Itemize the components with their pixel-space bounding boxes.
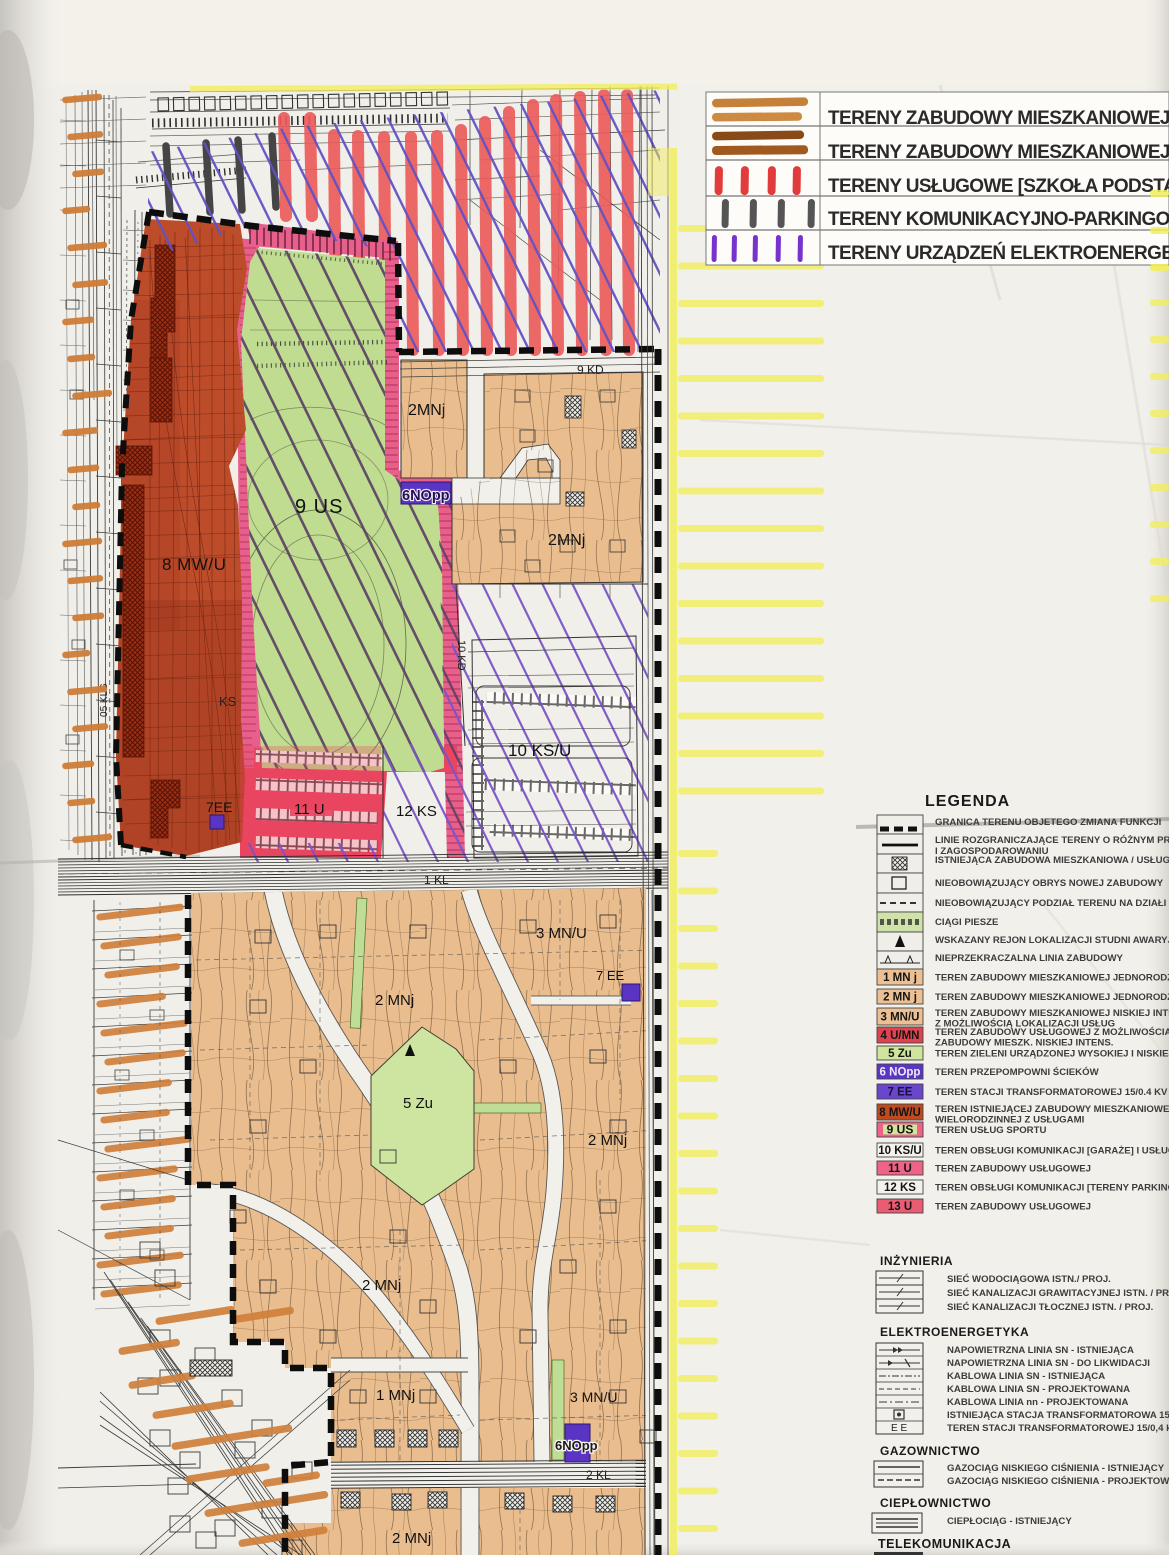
svg-text:KABLOWA LINIA nn - PROJEKTOWAN: KABLOWA LINIA nn - PROJEKTOWANA [947,1397,1128,1408]
svg-text:6NOpp: 6NOpp [555,1438,598,1453]
svg-text:NAPOWIETRZNA LINIA SN - DO LIK: NAPOWIETRZNA LINIA SN - DO LIKWIDACJI [947,1358,1150,1369]
svg-text:KABLOWA LINIA SN - ISTNIEJĄCA: KABLOWA LINIA SN - ISTNIEJĄCA [947,1371,1105,1382]
svg-text:ISTNIEJĄCA STACJA TRANSFORMATO: ISTNIEJĄCA STACJA TRANSFORMATOROWA 15/0,… [947,1410,1169,1421]
svg-text:CIĄGI PIESZE: CIĄGI PIESZE [935,917,999,928]
svg-text:10 KS/U: 10 KS/U [508,741,571,760]
svg-text:TEREN OBSŁUGI KOMUNIKACJI [GAR: TEREN OBSŁUGI KOMUNIKACJI [GARAŻE] I USŁ… [935,1146,1169,1157]
svg-text:TERENY KOMUNIKACYJNO-PARKINGOW: TERENY KOMUNIKACYJNO-PARKINGOWE [828,209,1169,230]
svg-text:11 U: 11 U [888,1163,912,1175]
svg-text:TERENY ZABUDOWY MIESZKANIOWEJ: TERENY ZABUDOWY MIESZKANIOWEJ WIELORODZI… [828,142,1169,163]
svg-text:2 KL: 2 KL [586,1468,611,1482]
svg-text:3 MN/U: 3 MN/U [570,1389,617,1405]
svg-text:TEREN ZABUDOWY USŁUGOWEJ: TEREN ZABUDOWY USŁUGOWEJ [935,1164,1091,1175]
svg-text:6 NOpp: 6 NOpp [880,1067,921,1079]
svg-text:5 Zu: 5 Zu [888,1048,912,1060]
svg-text:8 MW/U: 8 MW/U [162,555,226,574]
svg-text:TEREN ZABUDOWY USŁUGOWEJ Z MOŻ: TEREN ZABUDOWY USŁUGOWEJ Z MOŻLIWOŚCIĄ L… [935,1026,1169,1038]
svg-text:10 KD: 10 KD [455,640,467,671]
svg-text:13 U: 13 U [888,1201,912,1213]
svg-text:CIEPŁOWNICTWO: CIEPŁOWNICTWO [880,1496,991,1510]
svg-text:TEREN USŁUG SPORTU: TEREN USŁUG SPORTU [935,1125,1046,1136]
svg-text:2 MNj: 2 MNj [588,1132,627,1149]
svg-text:ZABUDOWY MIESZK. NISKIEJ INTEN: ZABUDOWY MIESZK. NISKIEJ INTENS. [935,1038,1113,1049]
svg-text:12 KS: 12 KS [884,1182,916,1194]
svg-text:12 KS: 12 KS [396,803,437,820]
svg-text:9 US: 9 US [887,1123,914,1137]
svg-text:TEREN ZABUDOWY MIESZKANIOWEJ J: TEREN ZABUDOWY MIESZKANIOWEJ JEDNORODZIN… [935,992,1169,1003]
svg-text:TELEKOMUNIKACJA: TELEKOMUNIKACJA [878,1537,1011,1551]
svg-text:SIEĆ KANALIZACJI GRAWITACYJNEJ: SIEĆ KANALIZACJI GRAWITACYJNEJ ISTN. / P… [947,1287,1169,1299]
svg-text:11 U: 11 U [294,801,325,818]
svg-text:TERENY ZABUDOWY MIESZKANIOWEJ: TERENY ZABUDOWY MIESZKANIOWEJ JEDNORODZI… [828,108,1169,129]
svg-text:7 EE: 7 EE [596,968,625,983]
svg-text:NIEPRZEKRACZALNA LINIA ZABUDOW: NIEPRZEKRACZALNA LINIA ZABUDOWY [935,953,1124,964]
svg-text:3 MN/U: 3 MN/U [536,925,587,942]
svg-text:CIEPŁOCIĄG - ISTNIEJĄCY: CIEPŁOCIĄG - ISTNIEJĄCY [947,1516,1072,1527]
svg-text:KABLOWA LINIA SN - PROJEKTOWAN: KABLOWA LINIA SN - PROJEKTOWANA [947,1384,1130,1395]
svg-text:E E: E E [891,1423,907,1434]
svg-text:1 KL: 1 KL [424,873,449,887]
svg-text:1 MNj: 1 MNj [376,1387,415,1404]
svg-text:TEREN ZABUDOWY USŁUGOWEJ: TEREN ZABUDOWY USŁUGOWEJ [935,1202,1091,1213]
svg-text:TEREN ZABUDOWY MIESZKANIOWEJ J: TEREN ZABUDOWY MIESZKANIOWEJ JEDNORODZIN… [935,973,1169,984]
svg-text:4 U/MN: 4 U/MN [881,1030,920,1042]
svg-text:WIELORODZINNEJ Z USŁUGAMI: WIELORODZINNEJ Z USŁUGAMI [935,1115,1085,1126]
svg-text:SIEĆ WODOCIĄGOWA ISTN./ PROJ.: SIEĆ WODOCIĄGOWA ISTN./ PROJ. [947,1273,1111,1285]
svg-text:TERENY USŁUGOWE [SZKOŁA PODSTA: TERENY USŁUGOWE [SZKOŁA PODSTAWOWA] [828,176,1169,197]
svg-text:SIEĆ KANALIZACJI TŁOCZNEJ ISTN: SIEĆ KANALIZACJI TŁOCZNEJ ISTN. / PROJ. [947,1301,1153,1313]
svg-text:GAZOWNICTWO: GAZOWNICTWO [880,1444,980,1458]
svg-text:2 MN j: 2 MN j [883,992,917,1004]
svg-text:WSKAZANY REJON LOKALIZACJI STU: WSKAZANY REJON LOKALIZACJI STUDNI AWARYJ… [935,935,1169,946]
svg-text:GAZOCIĄG NISKIEGO CIŚNIENIA -: GAZOCIĄG NISKIEGO CIŚNIENIA - ISTNIEJĄCY [947,1462,1165,1474]
svg-text:ISTNIEJĄCA ZABUDOWA MIESZKANIO: ISTNIEJĄCA ZABUDOWA MIESZKANIOWA / USŁUG… [935,855,1169,866]
svg-text:TEREN OBSŁUGI KOMUNIKACJI [TER: TEREN OBSŁUGI KOMUNIKACJI [TERENY PARKIN… [935,1183,1169,1194]
svg-text:10 KS/U: 10 KS/U [878,1145,921,1157]
svg-text:7EE: 7EE [206,799,232,815]
svg-text:2 MNj: 2 MNj [392,1530,431,1547]
svg-text:TERENY URZĄDZEŃ ELEKTROENERGET: TERENY URZĄDZEŃ ELEKTROENERGETYCZNYCH [828,242,1169,264]
svg-text:TEREN ZIELENI URZĄDZONEJ WYSOK: TEREN ZIELENI URZĄDZONEJ WYSOKIEJ I NISK… [935,1049,1169,1060]
svg-text:KS: KS [219,694,237,709]
svg-text:NIEOBOWIĄZUJĄCY OBRYS NOWEJ ZA: NIEOBOWIĄZUJĄCY OBRYS NOWEJ ZABUDOWY [935,878,1164,889]
svg-text:8 MW/U: 8 MW/U [879,1107,921,1119]
svg-text:5 Zu: 5 Zu [403,1095,433,1112]
svg-text:6NOpp: 6NOpp [402,488,450,504]
svg-text:ELEKTROENERGETYKA: ELEKTROENERGETYKA [880,1325,1029,1339]
svg-text:2 MNj: 2 MNj [362,1277,401,1294]
svg-text:LEGENDA: LEGENDA [925,793,1010,810]
svg-text:TEREN ZABUDOWY MIESZKANIOWEJ N: TEREN ZABUDOWY MIESZKANIOWEJ NISKIEJ INT… [935,1007,1169,1019]
svg-text:7 EE: 7 EE [888,1087,913,1099]
svg-text:LINIE ROZGRANICZAJĄCE TERENY O: LINIE ROZGRANICZAJĄCE TERENY O RÓŻNYM PR… [935,834,1169,846]
svg-text:TEREN STACJI TRANSFORMATOROWEJ: TEREN STACJI TRANSFORMATOROWEJ 15/0,4 kV [947,1423,1169,1434]
svg-text:2 MNj: 2 MNj [375,992,414,1009]
svg-text:TEREN ISTNIEJĄCEJ ZABUDOWY MIE: TEREN ISTNIEJĄCEJ ZABUDOWY MIESZKANIOWEJ [935,1104,1169,1115]
svg-text:1 MN j: 1 MN j [883,972,917,984]
svg-text:INŻYNIERIA: INŻYNIERIA [880,1253,953,1268]
svg-text:GAZOCIĄG NISKIEGO CIŚNIENIA -: GAZOCIĄG NISKIEGO CIŚNIENIA - PROJEKTOWA… [947,1475,1169,1487]
svg-text:NAPOWIETRZNA LINIA SN - ISTNIE: NAPOWIETRZNA LINIA SN - ISTNIEJĄCA [947,1345,1134,1356]
svg-text:9 US: 9 US [295,496,343,518]
svg-text:TEREN STACJI TRANSFORMATOROWEJ: TEREN STACJI TRANSFORMATOROWEJ 15/0.4 KV [935,1087,1168,1098]
svg-text:NIEOBOWIĄZUJĄCY PODZIAŁ TERENU: NIEOBOWIĄZUJĄCY PODZIAŁ TERENU NA DZIAŁI… [935,898,1169,909]
svg-text:TEREN PRZEPOMPOWNI ŚCIEKÓW: TEREN PRZEPOMPOWNI ŚCIEKÓW [935,1066,1100,1078]
svg-text:3 MN/U: 3 MN/U [881,1012,920,1024]
svg-text:GRANICA TERENU OBJETEGO ZMIANA: GRANICA TERENU OBJETEGO ZMIANA FUNKCJI [935,817,1162,828]
